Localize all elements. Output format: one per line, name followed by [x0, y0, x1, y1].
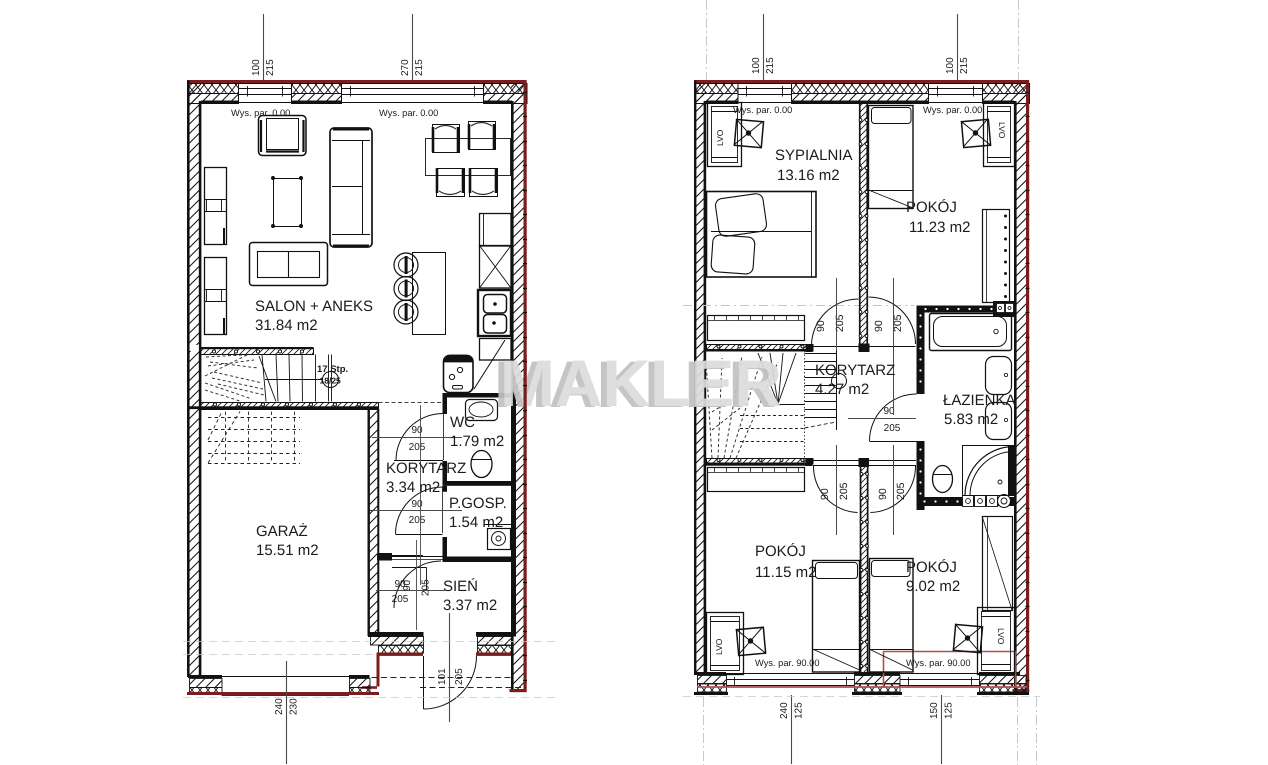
svg-text:205: 205	[834, 314, 846, 332]
svg-text:90: 90	[819, 488, 831, 500]
svg-text:Wys. par. 0.00: Wys. par. 0.00	[923, 105, 982, 115]
svg-text:Wys. par. 90.00: Wys. par. 90.00	[906, 658, 971, 668]
svg-text:101: 101	[437, 668, 448, 685]
svg-text:270: 270	[400, 59, 411, 76]
svg-text:90: 90	[877, 488, 889, 500]
svg-text:POKÓJ: POKÓJ	[906, 198, 957, 216]
svg-text:15.51 m2: 15.51 m2	[256, 542, 319, 559]
svg-text:KORYTARZ: KORYTARZ	[815, 362, 895, 379]
svg-text:205: 205	[895, 482, 907, 500]
svg-text:215: 215	[414, 59, 425, 76]
svg-text:150: 150	[929, 702, 940, 719]
svg-text:4.27 m2: 4.27 m2	[815, 381, 869, 398]
svg-text:205: 205	[409, 442, 426, 453]
svg-text:205: 205	[838, 482, 850, 500]
svg-text:5.83 m2: 5.83 m2	[944, 411, 998, 428]
svg-text:1.79 m2: 1.79 m2	[450, 433, 504, 450]
svg-text:POKÓJ: POKÓJ	[906, 558, 957, 576]
svg-text:MAKLER: MAKLER	[500, 346, 782, 420]
svg-text:90: 90	[873, 320, 885, 332]
svg-text:Wys. par. 0.00: Wys. par. 0.00	[379, 108, 438, 118]
svg-text:Wys. par. 0.00: Wys. par. 0.00	[733, 105, 792, 115]
svg-text:205: 205	[421, 579, 432, 596]
svg-text:100: 100	[945, 57, 956, 74]
svg-text:Wys. par. 0.00: Wys. par. 0.00	[231, 108, 290, 118]
svg-text:ŁAZIENKA: ŁAZIENKA	[943, 392, 1016, 409]
svg-text:215: 215	[265, 59, 276, 76]
svg-text:LVO: LVO	[996, 628, 1006, 645]
svg-text:100: 100	[751, 57, 762, 74]
svg-text:205: 205	[884, 423, 901, 434]
svg-text:9.02 m2: 9.02 m2	[906, 578, 960, 595]
svg-text:125: 125	[944, 702, 955, 719]
svg-text:POKÓJ: POKÓJ	[755, 542, 806, 560]
svg-text:90: 90	[411, 425, 423, 436]
svg-text:P.GOSP.: P.GOSP.	[449, 495, 507, 512]
svg-text:11.23 m2: 11.23 m2	[909, 219, 970, 236]
svg-text:90: 90	[815, 320, 827, 332]
svg-text:90: 90	[411, 499, 423, 510]
svg-text:215: 215	[959, 57, 970, 74]
svg-text:3.34 m2: 3.34 m2	[386, 479, 440, 496]
svg-text:17 Stp.: 17 Stp.	[317, 364, 348, 375]
svg-text:240: 240	[274, 698, 285, 715]
svg-text:LVO: LVO	[997, 122, 1007, 139]
svg-text:11.15 m2: 11.15 m2	[755, 564, 816, 581]
svg-text:125: 125	[794, 702, 805, 719]
svg-text:GARAŻ: GARAŻ	[256, 522, 308, 540]
svg-text:240: 240	[779, 702, 790, 719]
svg-text:230: 230	[289, 698, 300, 715]
svg-text:3.37 m2: 3.37 m2	[443, 597, 497, 614]
svg-text:SYPIALNIA: SYPIALNIA	[775, 147, 853, 164]
svg-text:WC: WC	[450, 414, 475, 431]
svg-text:205: 205	[409, 515, 426, 526]
svg-text:31.84 m2: 31.84 m2	[255, 317, 318, 334]
svg-text:100: 100	[251, 59, 262, 76]
svg-text:90: 90	[402, 579, 413, 591]
svg-text:13.16 m2: 13.16 m2	[777, 167, 840, 184]
svg-text:LVO: LVO	[714, 638, 724, 655]
svg-text:LVO: LVO	[715, 129, 725, 146]
svg-text:215: 215	[765, 57, 776, 74]
svg-text:SIEŃ: SIEŃ	[443, 577, 478, 595]
svg-text:SALON + ANEKS: SALON + ANEKS	[255, 298, 373, 315]
svg-text:1.54 m2: 1.54 m2	[449, 514, 503, 531]
svg-text:KORYTARZ: KORYTARZ	[386, 460, 466, 477]
svg-text:205: 205	[454, 668, 465, 685]
svg-text:Wys. par. 90.00: Wys. par. 90.00	[755, 658, 820, 668]
